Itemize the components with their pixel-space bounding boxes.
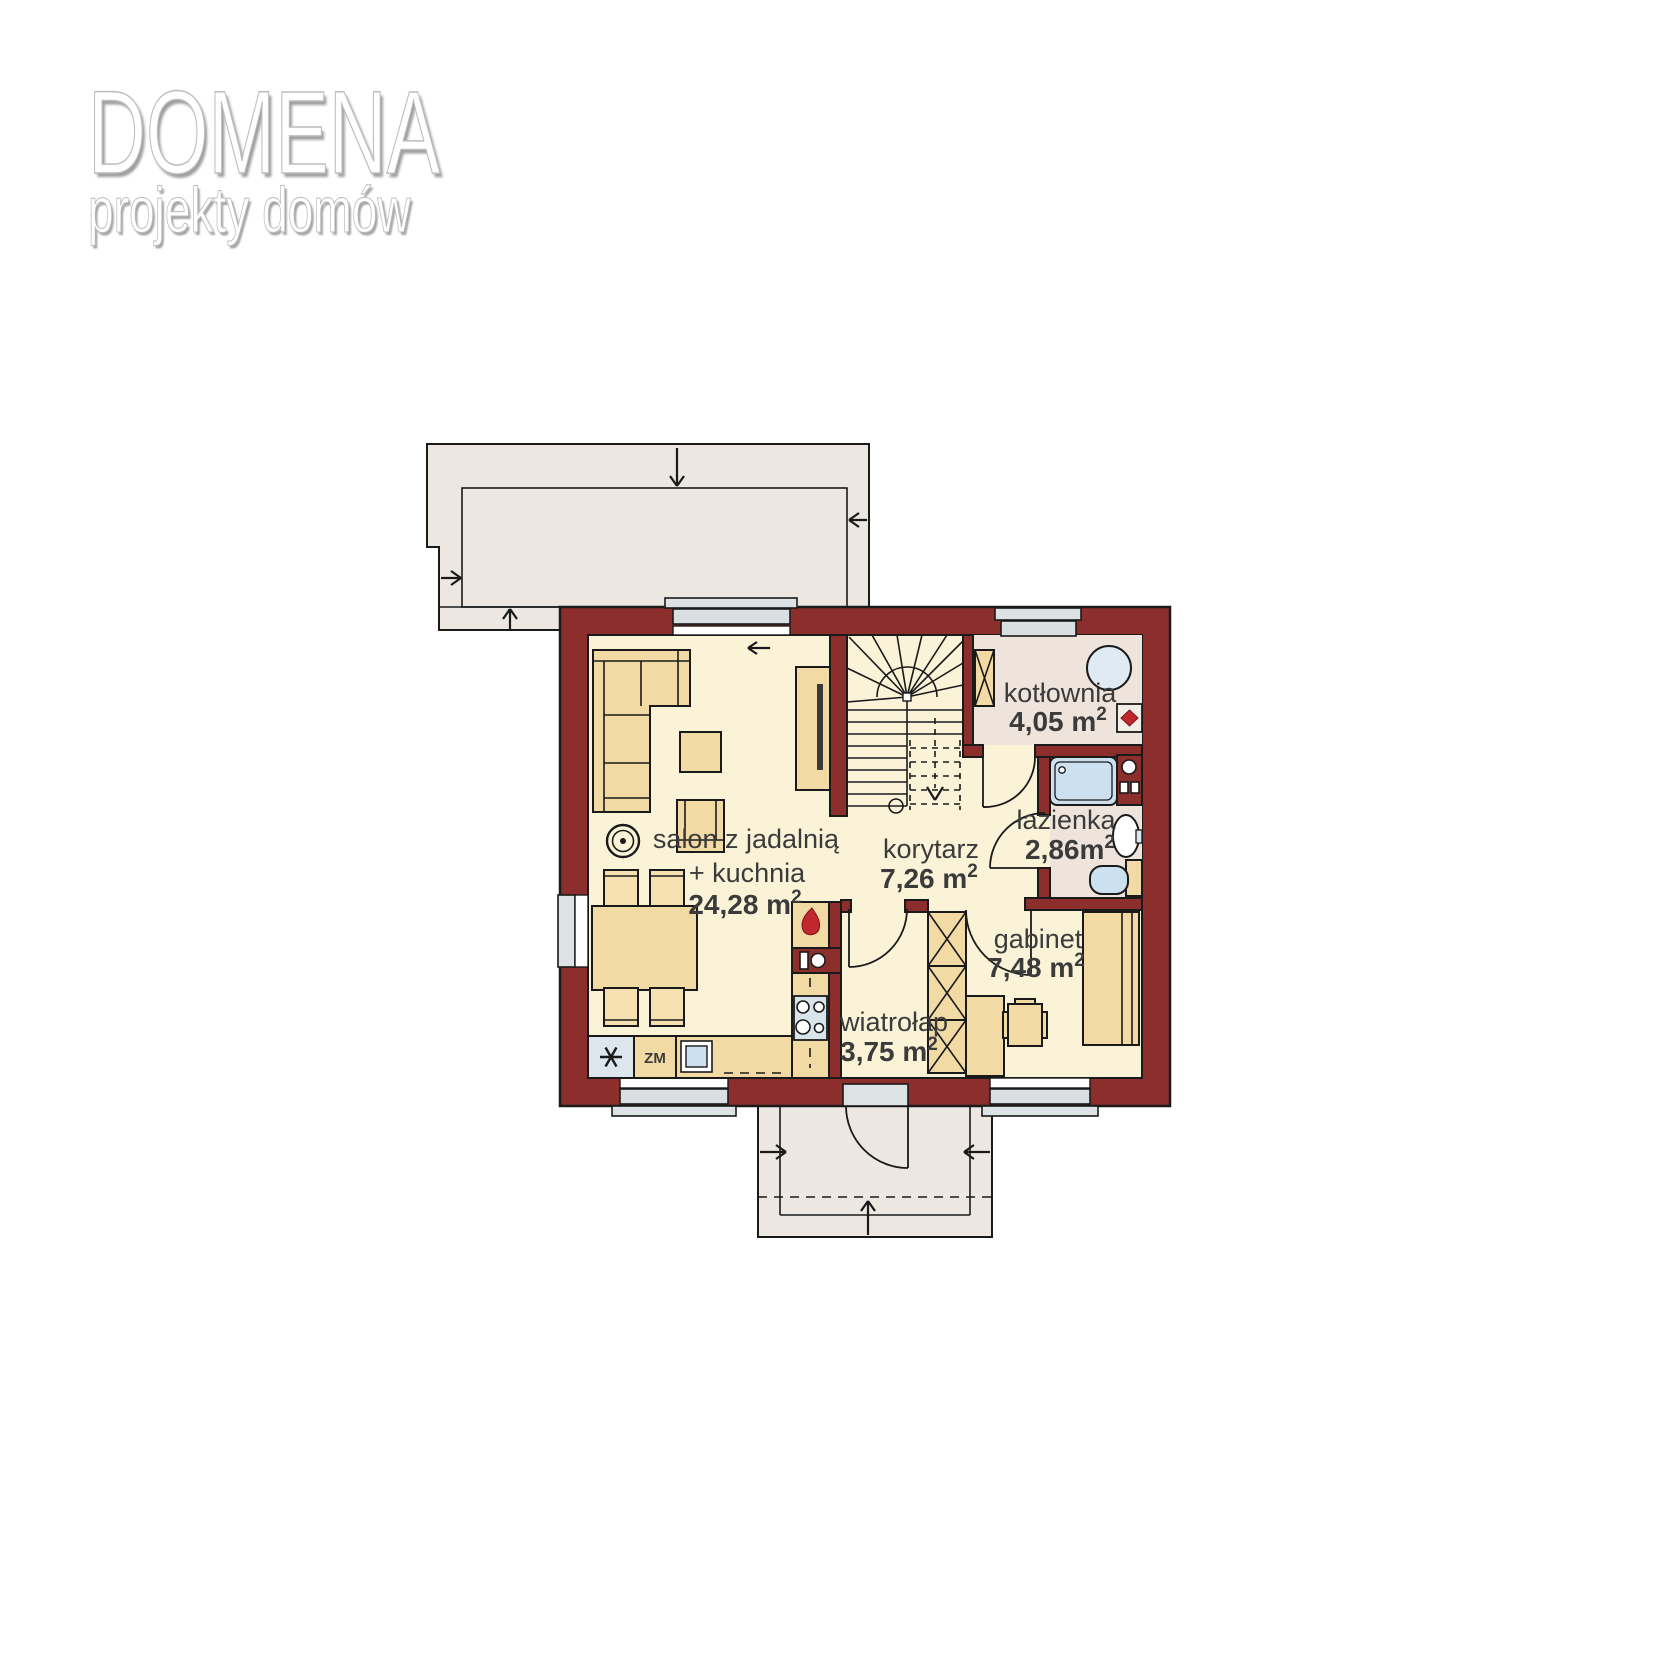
dining-table xyxy=(592,906,697,990)
floor-plan: ZM xyxy=(0,0,1680,1680)
vent-grille xyxy=(1120,782,1128,793)
desk-chair xyxy=(1003,999,1047,1046)
chimney-box xyxy=(1117,704,1142,732)
room-area-korytarz: 7,26 m2 xyxy=(880,861,978,894)
vent-pipe xyxy=(1122,760,1136,774)
window-living-room xyxy=(665,598,797,635)
room-area-kotlownia: 4,05 m2 xyxy=(1009,704,1107,737)
room-area-salon: 24,28 m2 xyxy=(688,887,801,920)
kitchen-sink-basin xyxy=(686,1046,707,1067)
dishwasher-label: ZM xyxy=(644,1050,666,1067)
coffee-table xyxy=(680,732,721,772)
room-label-wiatrolap: wiatrołap xyxy=(839,1007,948,1037)
room-area-gabinet: 7,48 m2 xyxy=(987,950,1085,983)
room-label-salon-line1: salon z jadalnią xyxy=(653,824,840,854)
room-label-gabinet: gabinet xyxy=(994,924,1083,954)
room-label-lazienka: łazienka xyxy=(1016,805,1116,835)
window-boiler-room xyxy=(995,608,1081,636)
boiler-room-cabinet xyxy=(975,650,994,706)
room-area-wiatrolap: 3,75 m2 xyxy=(840,1034,938,1067)
vent-grille xyxy=(1131,782,1139,793)
window-office xyxy=(982,1078,1098,1116)
room-label-salon-line2: + kuchnia xyxy=(689,858,806,888)
shower xyxy=(1050,757,1117,805)
speaker-circle-icon xyxy=(607,825,639,857)
tv-cabinet xyxy=(796,667,830,790)
desk xyxy=(966,996,1004,1076)
entrance-porch xyxy=(758,1106,992,1237)
window-kitchen xyxy=(612,1078,736,1116)
entrance-threshold xyxy=(843,1084,908,1106)
window-left xyxy=(558,895,588,967)
bed xyxy=(1083,912,1139,1045)
terrace xyxy=(427,444,869,630)
room-area-lazienka: 2,86m2 xyxy=(1025,832,1115,865)
room-label-korytarz: korytarz xyxy=(883,834,979,864)
